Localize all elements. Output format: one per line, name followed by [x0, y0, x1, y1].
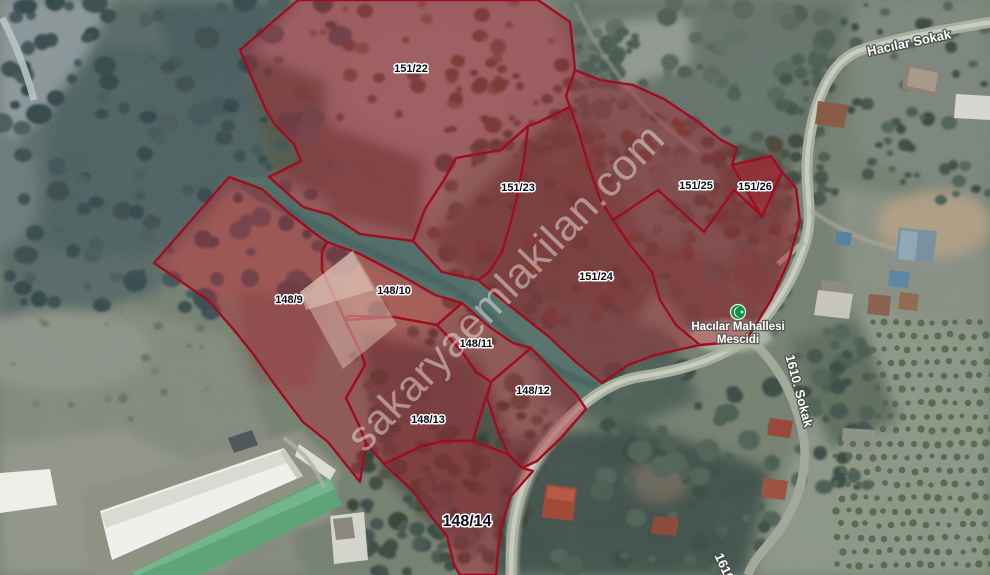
svg-text:Mescidi: Mescidi: [717, 334, 759, 346]
svg-text:148/12: 148/12: [516, 385, 550, 397]
svg-text:151/23: 151/23: [501, 182, 535, 194]
svg-text:148/10: 148/10: [377, 285, 411, 297]
svg-text:148/9: 148/9: [275, 294, 303, 306]
svg-text:148/14: 148/14: [443, 513, 492, 530]
svg-text:151/22: 151/22: [394, 63, 428, 75]
svg-text:151/24: 151/24: [579, 271, 614, 283]
svg-text:Hacılar Mahallesi: Hacılar Mahallesi: [691, 321, 784, 333]
svg-text:148/11: 148/11: [459, 338, 492, 350]
svg-text:151/26: 151/26: [738, 181, 772, 193]
svg-text:151/25: 151/25: [679, 180, 713, 192]
svg-text:148/13: 148/13: [411, 414, 445, 426]
